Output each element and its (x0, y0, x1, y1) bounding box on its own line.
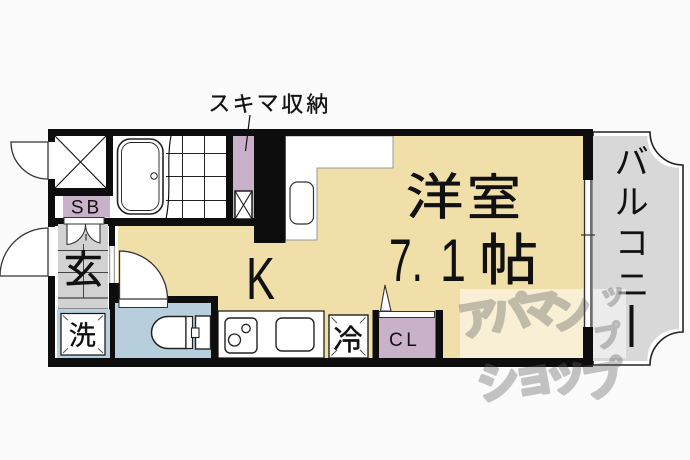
svg-text:7.: 7. (389, 227, 423, 294)
svg-text:1: 1 (440, 227, 466, 294)
svg-text:SB: SB (71, 198, 102, 219)
svg-text:K: K (246, 246, 275, 312)
svg-text:CL: CL (389, 330, 420, 351)
